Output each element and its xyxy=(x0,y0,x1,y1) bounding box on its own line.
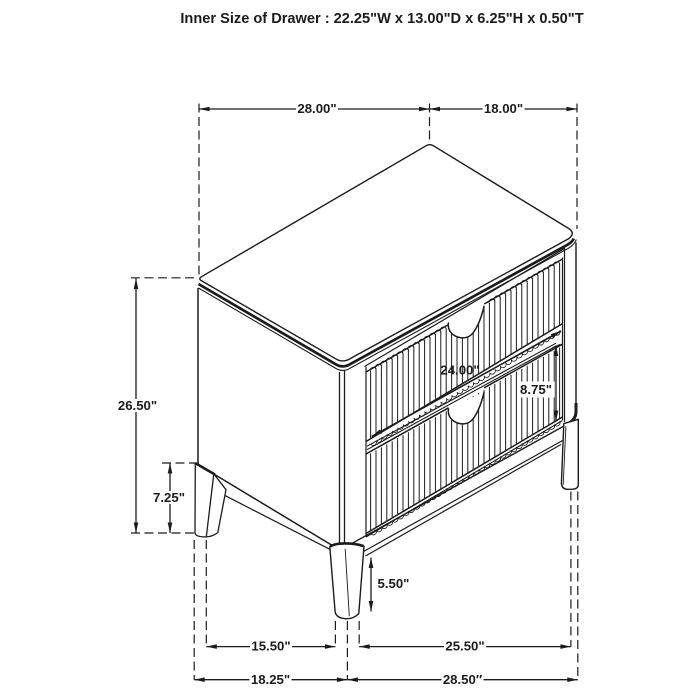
svg-text:18.00": 18.00" xyxy=(484,101,523,116)
svg-text:28.50″: 28.50″ xyxy=(443,672,483,687)
svg-text:5.50": 5.50" xyxy=(378,576,410,591)
svg-text:15.50": 15.50" xyxy=(251,639,290,654)
svg-text:Inner Size of Drawer : 22.25"W: Inner Size of Drawer : 22.25"W x 13.00"D… xyxy=(180,11,583,27)
svg-text:28.00": 28.00" xyxy=(297,101,336,116)
svg-text:26.50": 26.50" xyxy=(118,398,157,413)
svg-text:18.25": 18.25" xyxy=(251,672,290,687)
svg-text:24.00": 24.00" xyxy=(440,362,479,377)
svg-text:25.50": 25.50" xyxy=(445,639,484,654)
svg-text:8.75": 8.75" xyxy=(520,382,552,397)
svg-text:7.25": 7.25" xyxy=(153,490,185,505)
